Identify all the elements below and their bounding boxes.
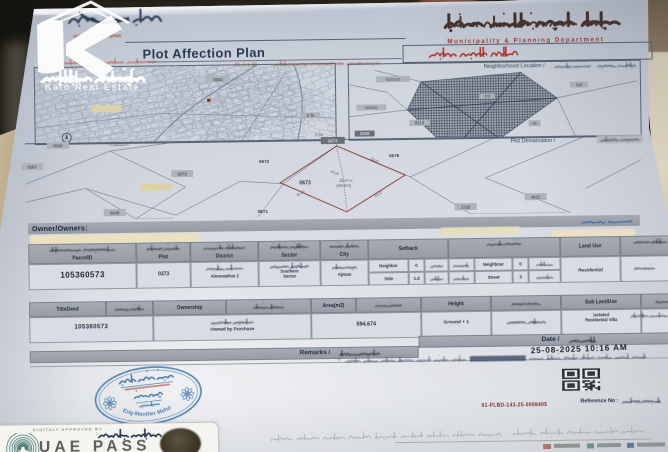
svg-text:05: 05 — [533, 122, 537, 126]
svg-text:0040: 0040 — [53, 143, 63, 148]
svg-text:1730: 1730 — [461, 204, 471, 209]
svg-text:073: 073 — [484, 94, 490, 98]
svg-text:*: * — [338, 359, 341, 365]
svg-text:0067: 0067 — [27, 165, 37, 170]
svg-text:0213: 0213 — [415, 120, 425, 125]
svg-text:210: 210 — [576, 83, 582, 87]
svg-text:0673: 0673 — [299, 180, 311, 186]
svg-text:0070: 0070 — [178, 171, 188, 176]
svg-text:0674: 0674 — [328, 138, 338, 143]
svg-text:0672: 0672 — [259, 159, 270, 164]
svg-text:0671: 0671 — [258, 209, 269, 214]
svg-text:021010: 021010 — [365, 106, 377, 110]
svg-text:0676: 0676 — [389, 153, 400, 158]
svg-text:Kafo Real Estate: Kafo Real Estate — [45, 82, 140, 92]
svg-text:0210110: 0210110 — [386, 77, 400, 81]
svg-text:0048: 0048 — [110, 210, 120, 215]
svg-text:2 St: 2 St — [307, 113, 315, 118]
svg-text:2774: 2774 — [315, 133, 323, 137]
svg-text:4021: 4021 — [531, 195, 541, 200]
